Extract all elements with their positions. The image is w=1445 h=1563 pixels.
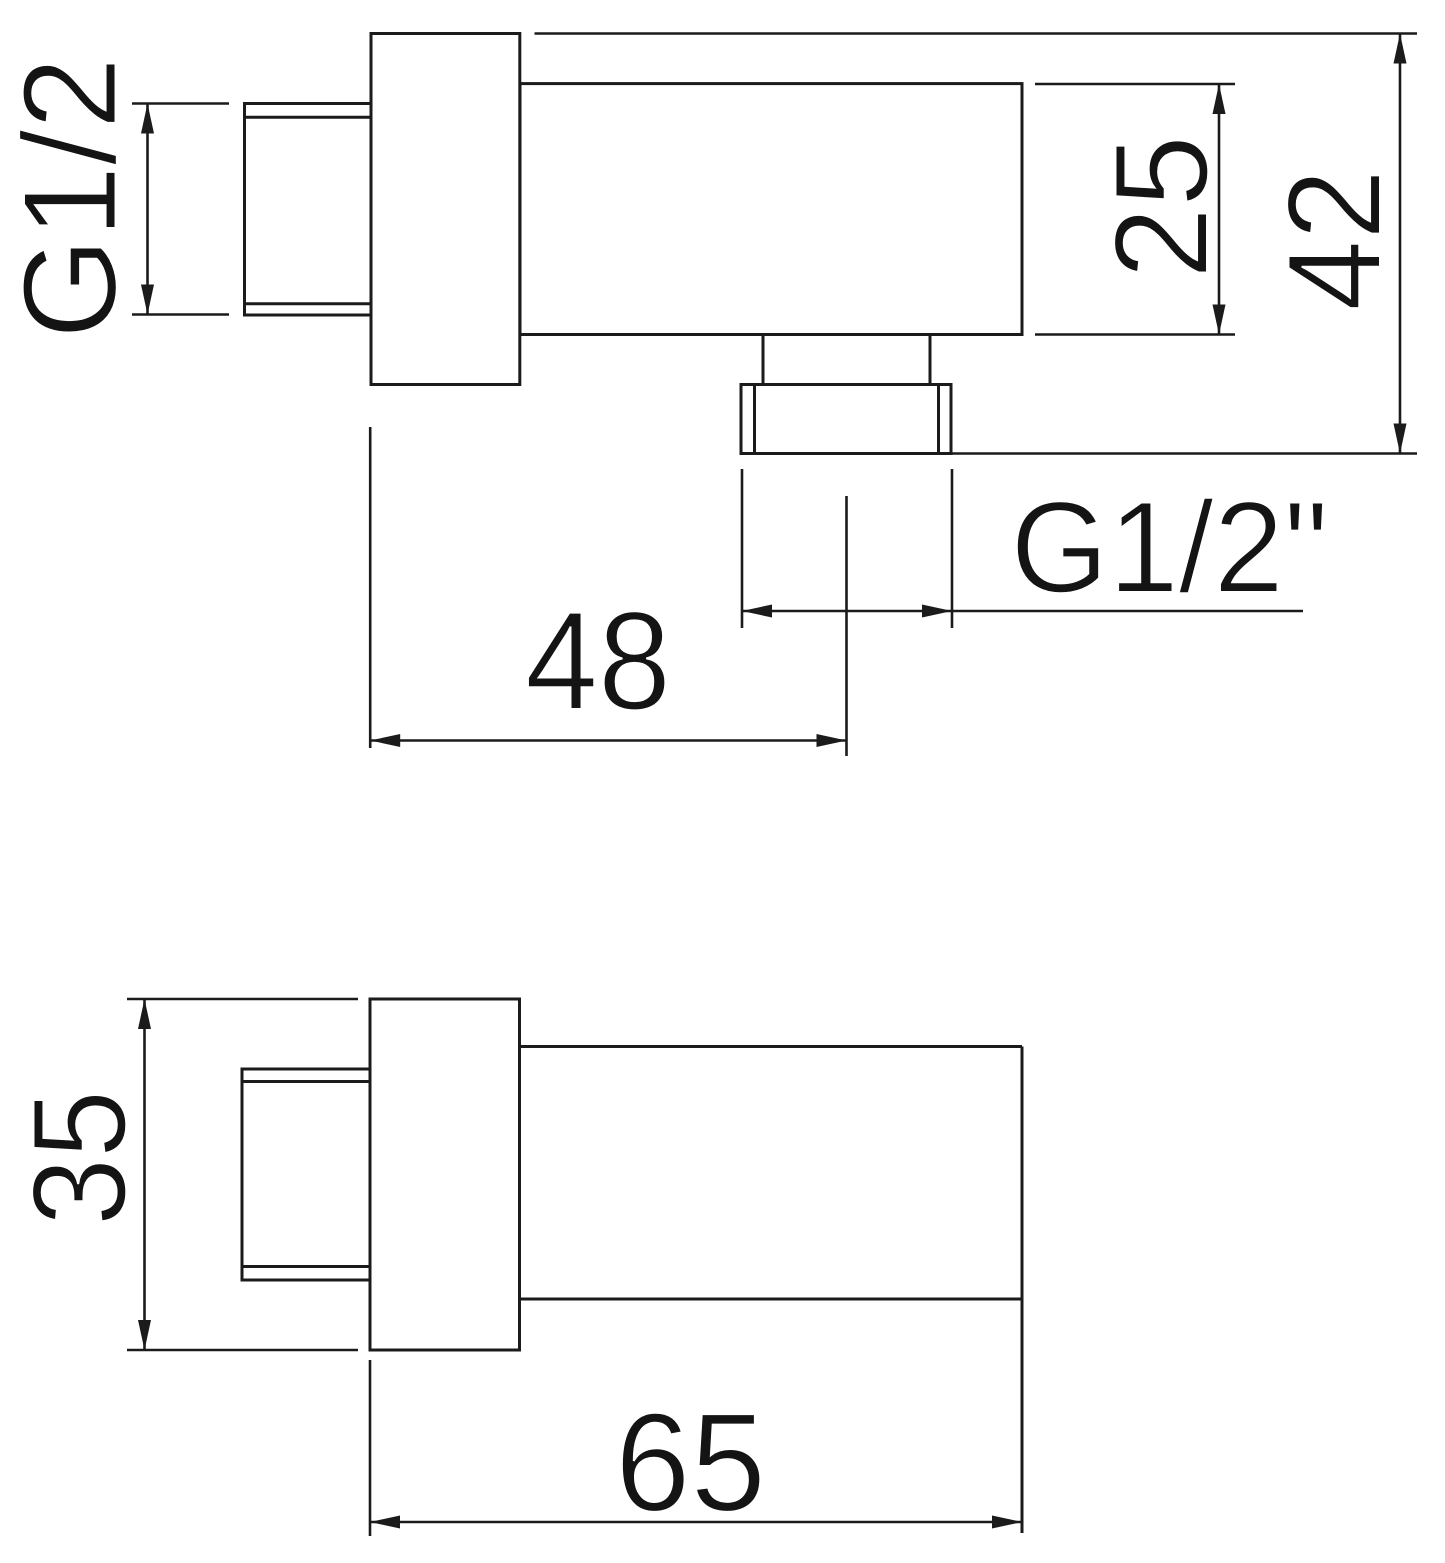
svg-text:25: 25 (1088, 135, 1236, 279)
svg-text:42: 42 (1261, 169, 1409, 311)
svg-text:48: 48 (525, 582, 671, 739)
svg-text:G1/2: G1/2 (0, 57, 145, 339)
svg-text:65: 65 (615, 1384, 766, 1541)
svg-text:G1/2": G1/2" (1011, 474, 1329, 620)
svg-text:35: 35 (6, 1090, 154, 1226)
